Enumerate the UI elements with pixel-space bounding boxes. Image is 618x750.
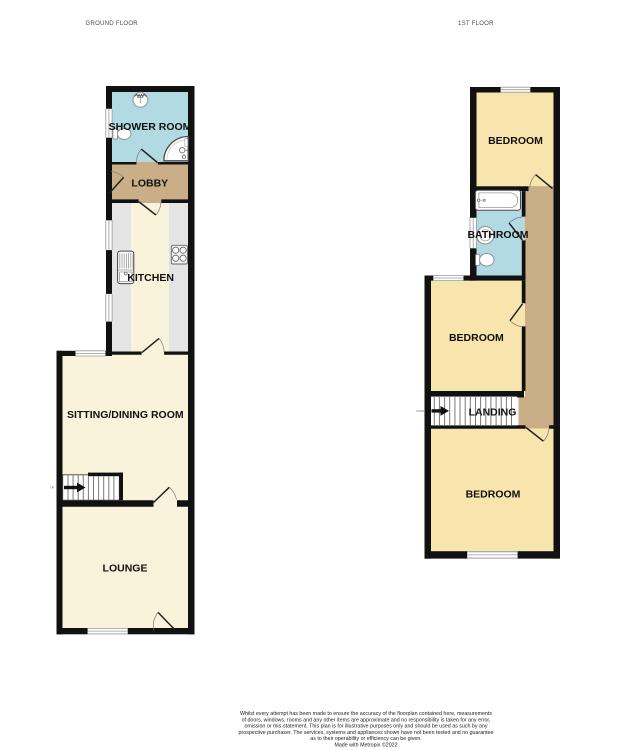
svg-text:as to their operability or eff: as to their operability or efficiency ca… xyxy=(310,736,422,742)
svg-text:KITCHEN: KITCHEN xyxy=(127,272,174,284)
svg-text:SITTING/DINING ROOM: SITTING/DINING ROOM xyxy=(67,409,184,421)
svg-text:BEDROOM: BEDROOM xyxy=(449,332,504,344)
svg-text:1ST FLOOR: 1ST FLOOR xyxy=(458,20,494,27)
svg-text:SHOWER ROOM: SHOWER ROOM xyxy=(109,121,192,133)
svg-text:LOUNGE: LOUNGE xyxy=(103,562,148,574)
svg-text:of doors, windows, rooms and a: of doors, windows, rooms and any other i… xyxy=(242,717,491,723)
svg-text:Made with Metropix ©2022: Made with Metropix ©2022 xyxy=(334,742,397,749)
svg-text:prospective purchaser. The ser: prospective purchaser. The services, sys… xyxy=(239,730,494,736)
svg-text:DOWN: DOWN xyxy=(417,409,426,413)
svg-text:Whilst every attempt has been: Whilst every attempt has been made to en… xyxy=(240,711,492,717)
svg-text:BEDROOM: BEDROOM xyxy=(466,488,521,500)
svg-text:LOBBY: LOBBY xyxy=(131,177,168,189)
svg-text:BEDROOM: BEDROOM xyxy=(488,135,543,147)
svg-text:UP: UP xyxy=(51,486,55,490)
svg-text:BATHROOM: BATHROOM xyxy=(467,229,528,241)
svg-text:GROUND FLOOR: GROUND FLOOR xyxy=(86,20,139,27)
svg-text:omission or mis-statement. Thi: omission or mis-statement. This plan is … xyxy=(244,724,487,730)
svg-text:LANDING: LANDING xyxy=(469,407,517,419)
